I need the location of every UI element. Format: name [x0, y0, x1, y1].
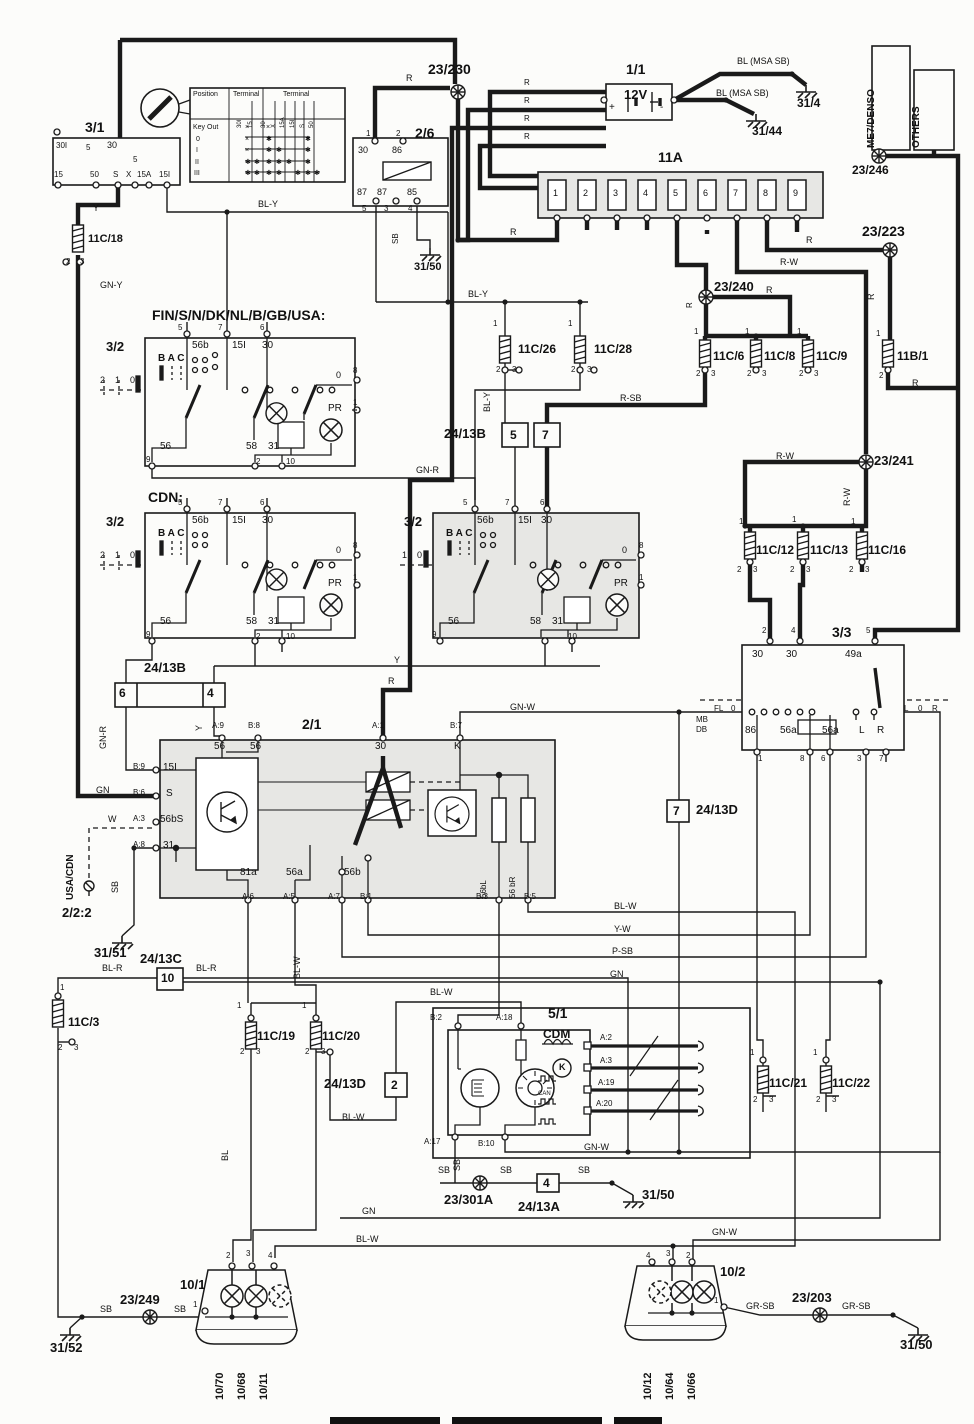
label-11c-6: 11C/6	[713, 350, 744, 362]
label-8: 8	[639, 542, 643, 550]
box-me7-denso	[872, 46, 910, 150]
label-1: 1	[876, 330, 880, 338]
label-r: R	[686, 302, 694, 308]
label-2: 2	[496, 366, 500, 374]
label-3: 3	[814, 370, 818, 378]
label-30: 30	[375, 742, 386, 752]
label-7: 7	[733, 189, 738, 198]
label-a-6: A:6	[242, 893, 254, 901]
label-k: K	[559, 1063, 566, 1072]
label-15i: 15I	[290, 120, 296, 128]
label-r: R	[867, 294, 876, 301]
label-49a: 49a	[845, 650, 862, 660]
label-3: 3	[769, 1096, 773, 1104]
label-2: 2	[686, 1252, 690, 1260]
optional-lamp-10-1	[269, 1285, 291, 1307]
label-30: 30	[107, 141, 117, 150]
label-0: 0	[622, 546, 627, 555]
label-6: 6	[703, 189, 708, 198]
label-11c-21: 11C/21	[769, 1077, 807, 1089]
label-7: 7	[218, 499, 222, 507]
label-bl-y: BL-Y	[258, 200, 278, 209]
label-15a: 15A	[137, 171, 151, 179]
label-10-12: 10/12	[643, 1372, 654, 1400]
label-15i: 15I	[159, 171, 170, 179]
label-b-a-c: B A C	[446, 529, 472, 539]
label-: ✱	[276, 170, 282, 177]
label-23-230: 23/230	[428, 62, 471, 76]
label-3: 3	[74, 1044, 78, 1052]
label-1: 1	[493, 320, 497, 328]
label-sb: SB	[453, 1159, 462, 1171]
label-2-2-2: 2/2:2	[62, 906, 92, 919]
label-1: 1	[813, 1049, 817, 1057]
label-24-13b: 24/13B	[444, 427, 486, 440]
label-1: 1	[797, 328, 801, 336]
label-: +	[609, 103, 615, 113]
label-: ✱	[276, 147, 282, 154]
label-56a: 56a	[286, 868, 303, 878]
label-2: 2	[391, 1079, 398, 1091]
label-1: 1	[237, 1002, 241, 1010]
label-1: 1	[694, 328, 698, 336]
label-15i: 15I	[163, 763, 177, 773]
label-50: 50	[90, 171, 99, 179]
label-30i: 30I	[56, 142, 67, 150]
label-23-203: 23/203	[792, 1291, 832, 1304]
label-24-13c: 24/13C	[140, 952, 182, 965]
label-: -	[660, 103, 663, 113]
label-2: 2	[879, 372, 883, 380]
label-56: 56	[160, 442, 171, 452]
ground-31-50-relay	[420, 248, 441, 261]
label-cdm: CDM	[543, 1028, 570, 1040]
label-81a: 81a	[240, 868, 257, 878]
label-56: 56	[250, 742, 261, 752]
label-2: 2	[747, 370, 751, 378]
label-2: 2	[762, 627, 766, 635]
label-7: 7	[505, 499, 509, 507]
label-87: 87	[357, 188, 367, 197]
label-56: 56	[448, 617, 459, 627]
label-: ✱	[254, 159, 260, 166]
label-0: 0	[130, 551, 135, 560]
label-1-1: 1/1	[626, 62, 645, 76]
label-2: 2	[799, 370, 803, 378]
label-24-13b: 24/13B	[144, 661, 186, 674]
label-2: 2	[571, 366, 575, 374]
label-x: X	[126, 171, 131, 179]
label-y: Y	[195, 725, 204, 731]
label-23-223: 23/223	[862, 224, 905, 238]
label-k: K	[454, 742, 461, 752]
label-bl-y: BL-Y	[483, 392, 492, 412]
label-10-68: 10/68	[237, 1372, 248, 1400]
label-sb: SB	[438, 1166, 450, 1175]
label-pr: PR	[328, 579, 342, 589]
label-7: 7	[673, 805, 680, 817]
label-bl-w: BL-W	[342, 1113, 365, 1122]
label-1: 1	[60, 984, 64, 992]
label-3-2: 3/2	[106, 340, 124, 353]
splice-23-246	[872, 149, 886, 163]
label-31-50: 31/50	[642, 1188, 675, 1201]
label-r: R	[524, 133, 530, 141]
label-5: 5	[86, 144, 90, 152]
label-1: 1	[193, 1301, 197, 1309]
label-31: 31	[552, 617, 563, 627]
label-r: R	[806, 236, 813, 245]
label-: ✱	[295, 170, 301, 177]
label-1: 1	[353, 399, 357, 407]
label-a-17: A:17	[424, 1138, 440, 1146]
label-10-64: 10/64	[665, 1372, 676, 1400]
label-10-66: 10/66	[687, 1372, 698, 1400]
label-pr: PR	[614, 579, 628, 589]
label-a-2: A:2	[600, 1034, 612, 1042]
label-1: 1	[792, 516, 796, 524]
ground-31-50-mid	[623, 1195, 644, 1208]
label-pr: PR	[328, 404, 342, 414]
label-: ✱	[245, 159, 251, 166]
label-r: R	[406, 74, 413, 83]
label-10: 10	[568, 633, 577, 641]
label-3: 3	[857, 755, 861, 763]
label-2: 2	[396, 130, 400, 138]
label-86: 86	[745, 726, 756, 736]
label-fin-s-n-dk-nl-b-gb-usa: FIN/S/N/DK/NL/B/GB/USA:	[152, 308, 325, 322]
label-11c-8: 11C/8	[764, 350, 795, 362]
label-3: 3	[832, 1096, 836, 1104]
label-bl-r: BL-R	[196, 964, 217, 973]
label-2: 2	[240, 1048, 244, 1056]
label-5: 5	[133, 156, 137, 164]
label-11c-16: 11C/16	[868, 544, 906, 556]
label-bl-r: BL-R	[102, 964, 123, 973]
label-gn: GN	[96, 786, 110, 795]
label-b-8: B:8	[248, 722, 260, 730]
label-: ✱	[305, 159, 311, 166]
label-r: R	[912, 379, 919, 388]
label-31-44: 31/44	[752, 125, 782, 137]
label-3: 3	[512, 366, 516, 374]
label-fl: FL	[714, 705, 723, 713]
label-6: 6	[260, 499, 264, 507]
label-23-241: 23/241	[874, 454, 914, 467]
label-31-50: 31/50	[414, 262, 442, 273]
ignition-key-icon	[141, 89, 190, 127]
label-b-a-c: B A C	[158, 354, 184, 364]
label-11c-9: 11C/9	[816, 350, 847, 362]
label-11b-1: 11B/1	[897, 350, 928, 362]
label-sb: SB	[111, 881, 120, 893]
label-58: 58	[246, 617, 257, 627]
label-1: 1	[366, 130, 370, 138]
label-4: 4	[268, 1252, 272, 1260]
label-2: 2	[58, 1044, 62, 1052]
splice-23-230	[451, 85, 465, 99]
label-30: 30	[262, 341, 273, 351]
label-30i: 30I	[237, 120, 243, 128]
label-15i: 15I	[518, 516, 532, 526]
label-2-6: 2/6	[415, 126, 434, 140]
splice-23-249	[143, 1310, 157, 1324]
label-r: R	[766, 286, 773, 295]
label-11c-18: 11C/18	[88, 234, 123, 245]
label-30: 30	[786, 650, 797, 660]
label-bl-w: BL-W	[293, 957, 302, 980]
transistor-icon	[207, 792, 247, 832]
label-r-sb: R-SB	[620, 394, 642, 403]
label-3-2: 3/2	[404, 515, 422, 528]
label-: ×	[266, 124, 270, 131]
label-6: 6	[540, 499, 544, 507]
label-3: 3	[711, 370, 715, 378]
label-l: L	[859, 726, 865, 736]
label-sb: SB	[100, 1305, 112, 1314]
label-ii: II	[195, 159, 199, 166]
label-a-20: A:20	[596, 1100, 612, 1108]
label-3-3: 3/3	[832, 625, 851, 639]
label-s: S	[166, 789, 173, 799]
label-1: 1	[115, 376, 120, 385]
label-56: 56	[214, 742, 225, 752]
label-2: 2	[753, 1096, 757, 1104]
label-12v: 12V	[624, 88, 647, 101]
label-56b: 56b	[344, 868, 361, 878]
label-gn: GN	[362, 1207, 376, 1216]
label-4: 4	[646, 1252, 650, 1260]
label-2: 2	[100, 551, 105, 560]
label-r: R	[524, 79, 530, 87]
label-0: 0	[336, 546, 341, 555]
label-sb: SB	[392, 233, 400, 244]
label-3: 3	[256, 1048, 260, 1056]
label-terminal: Terminal	[283, 91, 309, 98]
label-2-1: 2/1	[302, 717, 321, 731]
label-a-8: A:8	[133, 841, 145, 849]
label-gn-w: GN-W	[510, 703, 535, 712]
label-56b: 56b	[477, 516, 494, 526]
label-23-246: 23/246	[852, 164, 889, 176]
label-sb: SB	[174, 1305, 186, 1314]
label-s: S	[300, 124, 306, 128]
label-r: R	[932, 705, 938, 713]
label-10: 10	[161, 972, 174, 984]
label-b-7: B:7	[450, 722, 462, 730]
label-31: 31	[268, 442, 279, 452]
label-8: 8	[353, 367, 357, 375]
label-56: 56	[160, 617, 171, 627]
label-11c-28: 11C/28	[594, 343, 632, 355]
label-me7-denso: ME7/DENSO	[867, 89, 877, 148]
label-2: 2	[816, 1096, 820, 1104]
label-: ✱	[266, 159, 272, 166]
label-a-19: A:19	[598, 1079, 614, 1087]
label-r: R	[510, 228, 517, 237]
label-bl-w: BL-W	[430, 988, 453, 997]
splice-23-240	[699, 290, 713, 304]
label-a-7: A:7	[328, 893, 340, 901]
label-gr-sb: GR-SB	[746, 1302, 775, 1311]
label-11c-20: 11C/20	[322, 1030, 360, 1042]
label-bl-msa-sb: BL (MSA SB)	[716, 89, 769, 98]
label-x: X	[271, 124, 277, 128]
label-30: 30	[262, 516, 273, 526]
label-3: 3	[762, 370, 766, 378]
label-1: 1	[568, 320, 572, 328]
connector-2-2-2-symbol	[84, 881, 94, 896]
label-db: DB	[696, 726, 707, 734]
label-56bs: 56bS	[160, 815, 183, 825]
label-9: 9	[432, 631, 436, 639]
transistor-icon-2	[435, 797, 469, 831]
label-10: 10	[286, 458, 295, 466]
label-11c-22: 11C/22	[832, 1077, 870, 1089]
label-3: 3	[806, 566, 810, 574]
label-a-3: A:3	[600, 1057, 612, 1065]
label-b-1: B:1	[360, 893, 372, 901]
label-5: 5	[866, 627, 870, 635]
label-iii: III	[194, 170, 200, 177]
label-r-w: R-W	[776, 452, 794, 461]
label-: ✱	[254, 170, 260, 177]
label-2: 2	[226, 1252, 230, 1260]
wiring-diagram-page: 3/130I53051550SX15A15IPositionTerminalTe…	[0, 0, 974, 1424]
label-7: 7	[879, 755, 883, 763]
label-i: I	[196, 147, 198, 154]
label-1: 1	[115, 551, 120, 560]
label-3: 3	[321, 1048, 325, 1056]
label-bl-w: BL-W	[356, 1235, 379, 1244]
label-15a: 15A	[280, 117, 286, 128]
label-2: 2	[256, 458, 260, 466]
label-15i: 15I	[232, 516, 246, 526]
label-gn-r: GN-R	[416, 466, 439, 475]
label-8: 8	[353, 542, 357, 550]
label-2: 2	[100, 376, 105, 385]
label-r: R	[388, 677, 395, 686]
label-1: 1	[402, 551, 407, 560]
label-10-11: 10/11	[259, 1373, 270, 1400]
label-bl-y: BL-Y	[468, 290, 488, 299]
label-31: 31	[163, 841, 174, 851]
label-30: 30	[541, 516, 552, 526]
label-10: 10	[286, 633, 295, 641]
label-b-10: B:10	[478, 1140, 494, 1148]
label-8: 8	[763, 189, 768, 198]
label-9: 9	[793, 189, 798, 198]
label-r: R	[877, 726, 884, 736]
label-sb: SB	[578, 1166, 590, 1175]
label-: ×	[245, 147, 249, 154]
label-a-1: A:1	[372, 722, 384, 730]
label-gn-y: GN-Y	[100, 281, 123, 290]
label-56a: 56a	[822, 726, 839, 736]
label-mb: MB	[696, 716, 708, 724]
label-a-5: A:5	[283, 893, 295, 901]
lamp-cluster-10-2	[625, 1266, 726, 1340]
label-87: 87	[377, 188, 387, 197]
label-4: 4	[408, 205, 412, 213]
label-: ✱	[305, 147, 311, 154]
label-1: 1	[553, 189, 558, 198]
label-2: 2	[583, 189, 588, 198]
label-w: W	[108, 815, 117, 824]
label-0: 0	[417, 551, 422, 560]
label-0: 0	[336, 371, 341, 380]
label-24-13a: 24/13A	[518, 1200, 560, 1213]
label-58: 58	[530, 617, 541, 627]
label-0: 0	[918, 705, 922, 713]
label-p-sb: P-SB	[612, 947, 633, 956]
label-a-3: A:3	[133, 815, 145, 823]
ignition-position-table	[190, 88, 345, 182]
label-others: OTHERS	[912, 106, 922, 148]
label-56-br: 56 bR	[509, 877, 517, 898]
label-1: 1	[739, 518, 743, 526]
label-30: 30	[358, 146, 368, 155]
label-8: 8	[800, 755, 804, 763]
label-85: 85	[407, 188, 417, 197]
label-5-1: 5/1	[548, 1006, 567, 1020]
splice-23-203	[813, 1308, 827, 1322]
label-: ✱	[245, 170, 251, 177]
label-5: 5	[178, 324, 182, 332]
label-2: 2	[737, 566, 741, 574]
label-: ✱	[266, 136, 272, 143]
label-15i: 15I	[232, 341, 246, 351]
label-1: 1	[758, 755, 762, 763]
label-gn-w: GN-W	[584, 1143, 609, 1152]
label-23-249: 23/249	[120, 1293, 160, 1306]
label-: ✱	[276, 159, 282, 166]
label-10-1: 10/1	[180, 1278, 205, 1291]
label-2: 2	[790, 566, 794, 574]
relay-coil	[383, 162, 431, 180]
label-11c-19: 11C/19	[257, 1030, 295, 1042]
label-3-2: 3/2	[106, 515, 124, 528]
label-4: 4	[543, 1177, 550, 1189]
label-2: 2	[66, 258, 70, 266]
label-r-w: R-W	[780, 258, 798, 267]
label-0: 0	[731, 705, 735, 713]
label-7: 7	[218, 324, 222, 332]
label-a-9: A:9	[212, 722, 224, 730]
label-2: 2	[256, 633, 260, 641]
label-3: 3	[246, 1250, 250, 1258]
label-gn-w: GN-W	[712, 1228, 737, 1237]
label-1: 1	[639, 574, 643, 582]
label-30: 30	[752, 650, 763, 660]
label-: ✱	[266, 147, 272, 154]
label-2: 2	[305, 1048, 309, 1056]
label-: ✱	[305, 136, 311, 143]
label-23-240: 23/240	[714, 280, 754, 293]
label-5: 5	[463, 499, 467, 507]
label-86: 86	[392, 146, 402, 155]
label-b-2: B:2	[430, 1014, 442, 1022]
label-11c-13: 11C/13	[810, 544, 848, 556]
label-b-5: B:5	[524, 893, 536, 901]
label-r: R	[524, 97, 530, 105]
label-9: 9	[146, 456, 150, 464]
label-r: R	[524, 115, 530, 123]
label-11c-3: 11C/3	[68, 1016, 99, 1028]
label-s: S	[113, 171, 118, 179]
label-sb: SB	[500, 1166, 512, 1175]
label-31-50: 31/50	[900, 1338, 933, 1351]
